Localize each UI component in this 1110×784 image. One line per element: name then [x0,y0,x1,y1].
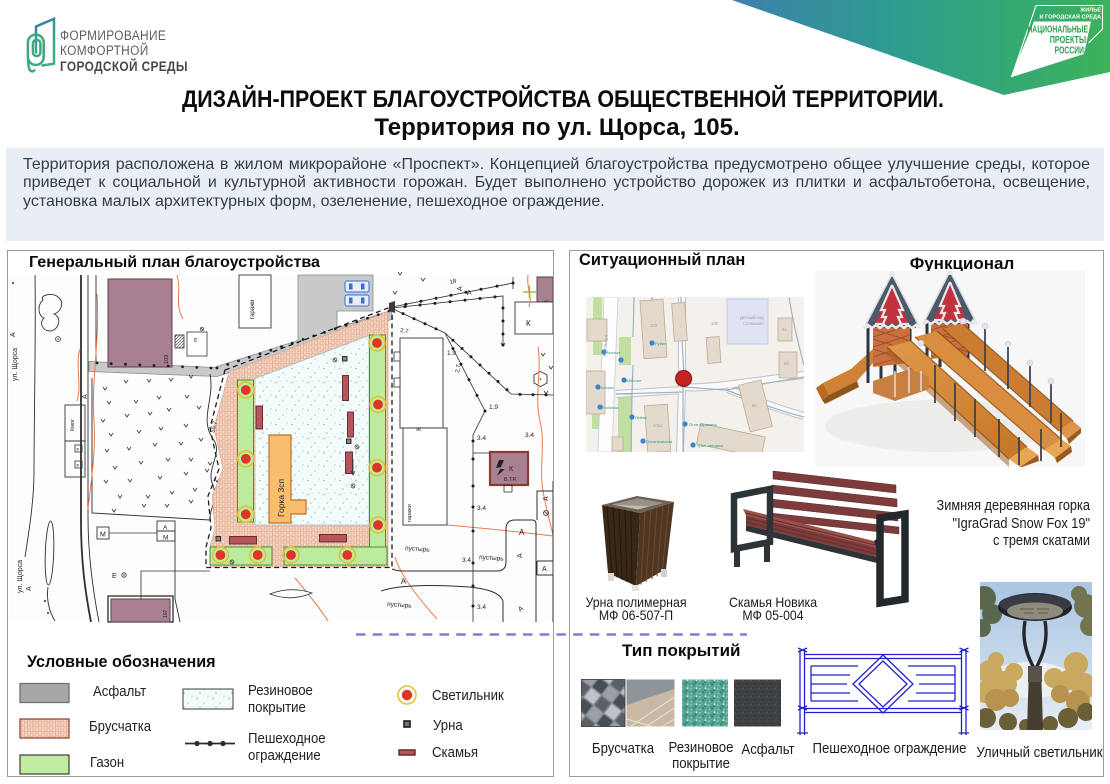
svg-text:А: А [517,553,524,558]
svg-text:m: m [193,338,199,342]
svg-text:103: 103 [164,355,170,364]
svg-text:Рыбалка: Рыбалка [602,405,619,410]
svg-text:105а: 105а [653,423,663,428]
svg-text:3.4: 3.4 [477,604,486,611]
svg-text:3.4: 3.4 [477,505,486,512]
svg-text:А: А [542,566,547,573]
svg-text:1.9: 1.9 [489,404,498,411]
svg-text:Е: Е [112,573,117,580]
svg-text:1.9: 1.9 [447,350,456,357]
svg-text:М: М [163,535,168,542]
svg-text:86: 86 [752,403,757,408]
svg-text:Лейла: Лейла [635,415,647,420]
svg-text:8а: 8а [782,327,787,332]
svg-text:ул. Щорса: ул. Щорса [17,560,24,593]
svg-text:К: К [526,319,531,328]
svg-text:А: А [26,586,33,591]
svg-text:Огни саравана: Огни саравана [689,422,717,427]
svg-text:103: 103 [650,323,658,328]
svg-text:И ГОРОДСКАЯ СРЕДА: И ГОРОДСКАЯ СРЕДА [1039,15,1101,21]
svg-text:Магнат: Магнат [607,350,620,355]
svg-text:А: А [543,496,550,501]
svg-text:А: А [519,528,525,537]
svg-text:3.4: 3.4 [525,432,534,439]
svg-text:Океаническая: Океаническая [646,439,672,444]
svg-text:Рубин: Рубин [655,341,666,346]
svg-text:А: А [82,394,89,399]
svg-text:Кмог: Кмог [70,419,76,431]
svg-text:А: А [457,286,464,291]
svg-text:Солнышко: Солнышко [743,321,764,326]
svg-text:107: 107 [163,609,169,618]
svg-text:Б.ТР.: Б.ТР. [504,477,517,483]
svg-text:М: М [100,532,106,539]
svg-text:А: А [10,332,17,337]
svg-text:105: 105 [711,321,719,326]
svg-text:3.4: 3.4 [462,557,471,564]
svg-text:8б: 8б [784,361,789,366]
svg-text:Урал-автодом: Урал-автодом [697,443,723,448]
svg-text:2.7: 2.7 [400,328,410,335]
svg-text:Айболит: Айболит [626,378,642,383]
svg-text:А: А [163,525,168,532]
svg-text:гаражи: гаражи [407,504,413,522]
svg-text:ул. Щорса: ул. Щорса [12,348,19,381]
svg-text:Каприз: Каприз [601,385,614,390]
svg-text:гаражи: гаражи [250,300,256,319]
svg-text:Детский сад: Детский сад [740,315,764,320]
svg-text:Горка 3сп: Горка 3сп [276,479,286,517]
svg-text:3.4: 3.4 [477,435,486,442]
svg-text:ЖИЛЬЕ: ЖИЛЬЕ [1079,8,1101,14]
svg-text:РОССИИ: РОССИИ [1055,44,1084,56]
